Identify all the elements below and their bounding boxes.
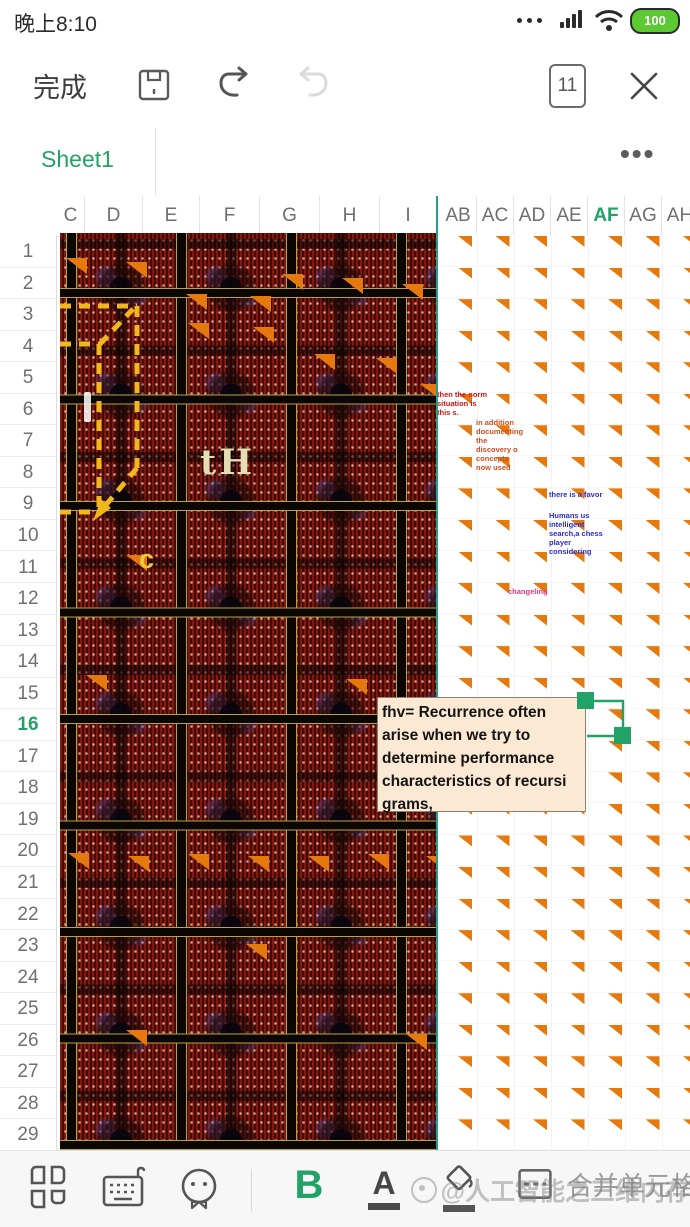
cell-triangle-icon	[458, 1119, 472, 1130]
cell-triangle-icon	[646, 236, 660, 247]
cell-triangle-icon	[496, 867, 510, 878]
font-color-letter: A	[372, 1165, 395, 1201]
gridline	[437, 361, 690, 362]
cell-triangle-icon	[458, 899, 472, 910]
comment-box[interactable]: fhv= Recurrence often arise when we try …	[377, 697, 586, 812]
cell-triangle-icon	[571, 362, 585, 373]
cell-triangle-icon	[608, 993, 622, 1004]
cell-triangle-icon	[683, 646, 690, 657]
gridline	[477, 236, 478, 1150]
cell-triangle-icon	[496, 899, 510, 910]
row-header-16[interactable]: 16	[0, 709, 56, 741]
cell-triangle-icon	[646, 331, 660, 342]
cell-triangle-icon	[646, 362, 660, 373]
battery-icon: 100	[630, 8, 680, 34]
column-header-AH[interactable]: AH	[662, 196, 690, 235]
cell-triangle-icon	[496, 299, 510, 310]
cell-triangle-icon	[683, 236, 690, 247]
cell-triangle-icon	[571, 930, 585, 941]
cell-triangle-icon	[533, 930, 547, 941]
cell-triangle-icon	[533, 993, 547, 1004]
row-header-25[interactable]: 25	[0, 993, 56, 1025]
column-header-AG[interactable]: AG	[625, 196, 662, 235]
column-header-I[interactable]: I	[380, 196, 437, 235]
column-header-AD[interactable]: AD	[514, 196, 551, 235]
row-header-21[interactable]: 21	[0, 867, 56, 899]
gridline	[437, 424, 690, 425]
chip-image-region[interactable]	[60, 233, 437, 1150]
cell-triangle-icon	[533, 362, 547, 373]
cell-triangle-icon	[533, 425, 547, 436]
cell-triangle-icon	[608, 1119, 622, 1130]
cell-triangle-icon	[496, 1056, 510, 1067]
font-color-bar	[368, 1203, 400, 1210]
weibo-eye-icon	[411, 1177, 437, 1203]
row-header-22[interactable]: 22	[0, 899, 56, 931]
cell-triangle-icon	[683, 709, 690, 720]
cell-triangle-icon	[683, 930, 690, 941]
cell-triangle-icon	[571, 299, 585, 310]
cell-triangle-icon	[608, 615, 622, 626]
row-header-28[interactable]: 28	[0, 1088, 56, 1120]
column-header-E[interactable]: E	[143, 196, 200, 235]
cell-triangle-icon	[683, 488, 690, 499]
cell-triangle-icon	[458, 268, 472, 279]
status-bar: 晚上8:10 100	[0, 0, 690, 42]
cell-triangle-icon	[458, 425, 472, 436]
cell-triangle-icon	[496, 268, 510, 279]
gridline	[437, 960, 690, 961]
cell-triangle-icon	[683, 331, 690, 342]
cell-triangle-icon	[571, 615, 585, 626]
save-icon[interactable]	[136, 67, 172, 103]
emoji-assistant-icon[interactable]	[176, 1165, 222, 1213]
cell-triangle-icon	[458, 1056, 472, 1067]
spreadsheet-app-screen: 晚上8:10 100 完成 11	[0, 0, 690, 1227]
gridline	[437, 582, 690, 583]
row-header-17[interactable]: 17	[0, 741, 56, 773]
cell-triangle-icon	[608, 299, 622, 310]
cell-triangle-icon	[496, 615, 510, 626]
column-header-H[interactable]: H	[320, 196, 380, 235]
row-header-10[interactable]: 10	[0, 520, 56, 552]
gridline	[437, 676, 690, 677]
gridline	[437, 455, 690, 456]
font-color-button[interactable]: A	[366, 1167, 402, 1210]
cell-triangle-icon	[646, 1056, 660, 1067]
cell-triangle-icon	[533, 331, 547, 342]
cell-triangle-icon	[496, 552, 510, 563]
cell-triangle-icon	[458, 615, 472, 626]
cell-triangle-icon	[458, 993, 472, 1004]
row-header-24[interactable]: 24	[0, 962, 56, 994]
cell-triangle-icon	[683, 362, 690, 373]
freeze-pane-divider	[436, 196, 438, 1150]
cell-triangle-icon	[683, 615, 690, 626]
cell-triangle-icon	[646, 583, 660, 594]
cell-triangle-icon	[533, 552, 547, 563]
cell-triangle-icon	[608, 1025, 622, 1036]
row-header-1[interactable]: 1	[0, 236, 56, 268]
bold-button[interactable]: B	[292, 1163, 326, 1208]
cell-triangle-icon	[683, 520, 690, 531]
cell-triangle-icon	[608, 583, 622, 594]
cell-triangle-icon	[683, 804, 690, 815]
cell-triangle-icon	[533, 615, 547, 626]
gridline	[437, 1055, 690, 1056]
gridline	[437, 865, 690, 866]
cell-note-text-5: changeling	[508, 587, 570, 596]
cell-triangle-icon	[683, 835, 690, 846]
cell-triangle-icon	[646, 709, 660, 720]
cell-triangle-icon	[608, 1056, 622, 1067]
cell-triangle-icon	[608, 268, 622, 279]
watermark-text: @人工智能之三维内存	[441, 1172, 690, 1208]
column-header-AF[interactable]: AF	[588, 196, 625, 235]
cell-triangle-icon	[571, 457, 585, 468]
cell-triangle-icon	[533, 236, 547, 247]
cell-triangle-icon	[646, 520, 660, 531]
row-header-4[interactable]: 4	[0, 331, 56, 363]
cell-triangle-icon	[458, 678, 472, 689]
cell-triangle-icon	[646, 488, 660, 499]
cell-triangle-icon	[458, 1025, 472, 1036]
cell-triangle-icon	[646, 899, 660, 910]
row-header-27[interactable]: 27	[0, 1056, 56, 1088]
cell-triangle-icon	[533, 962, 547, 973]
cell-triangle-icon	[646, 299, 660, 310]
gridline	[662, 236, 663, 1150]
cell-triangle-icon	[608, 678, 622, 689]
cell-triangle-icon	[496, 930, 510, 941]
keyboard-icon[interactable]	[100, 1165, 148, 1211]
cell-triangle-icon	[608, 709, 622, 720]
cell-triangle-icon	[646, 394, 660, 405]
comment-handle-right[interactable]	[614, 727, 631, 744]
cell-triangle-icon	[458, 835, 472, 846]
column-header-AB[interactable]: AB	[440, 196, 477, 235]
cell-triangle-icon	[533, 394, 547, 405]
cell-triangle-icon	[608, 772, 622, 783]
cell-triangle-icon	[496, 488, 510, 499]
gridline	[437, 329, 690, 330]
row-header-6[interactable]: 6	[0, 394, 56, 426]
cell-triangle-icon	[646, 867, 660, 878]
cell-triangle-icon	[608, 646, 622, 657]
column-header-AC[interactable]: AC	[477, 196, 514, 235]
gridline	[437, 1086, 690, 1087]
row-header-20[interactable]: 20	[0, 835, 56, 867]
cell-note-text-1: then the norm situation is this s.	[437, 390, 487, 417]
cell-triangle-icon	[533, 1119, 547, 1130]
row-header-18[interactable]: 18	[0, 772, 56, 804]
cell-triangle-icon	[458, 488, 472, 499]
cell-triangle-icon	[646, 552, 660, 563]
row-header-2[interactable]: 2	[0, 268, 56, 300]
cell-triangle-icon	[496, 678, 510, 689]
cell-triangle-icon	[496, 236, 510, 247]
gridline	[437, 298, 690, 299]
row-header-3[interactable]: 3	[0, 299, 56, 331]
gridline	[437, 266, 690, 267]
cell-triangle-icon	[608, 867, 622, 878]
gridline	[551, 236, 552, 1150]
gridline	[437, 1023, 690, 1024]
row-header-7[interactable]: 7	[0, 425, 56, 457]
row-header-29[interactable]: 29	[0, 1119, 56, 1151]
row-header-14[interactable]: 14	[0, 646, 56, 678]
cell-triangle-icon	[683, 962, 690, 973]
cell-triangle-icon	[646, 1088, 660, 1099]
cell-triangle-icon	[608, 488, 622, 499]
cell-triangle-icon	[533, 1088, 547, 1099]
cell-triangle-icon	[683, 457, 690, 468]
cell-triangle-icon	[646, 268, 660, 279]
tab-divider	[155, 128, 156, 196]
cell-triangle-icon	[571, 331, 585, 342]
cell-note-text-4: Humans us intelligent search,a chess pla…	[549, 511, 603, 556]
cell-triangle-icon	[683, 1056, 690, 1067]
cell-triangle-icon	[458, 962, 472, 973]
cell-note-text-3: there is a favor	[549, 490, 603, 499]
comment-handle-top[interactable]	[577, 692, 594, 709]
cell-triangle-icon	[646, 615, 660, 626]
cell-triangle-icon	[496, 331, 510, 342]
cell-triangle-icon	[458, 362, 472, 373]
cell-triangle-icon	[608, 804, 622, 815]
cell-triangle-icon	[496, 962, 510, 973]
cell-triangle-icon	[608, 899, 622, 910]
cell-triangle-icon	[533, 520, 547, 531]
row-header-12[interactable]: 12	[0, 583, 56, 615]
cell-triangle-icon	[571, 1088, 585, 1099]
row-header-9[interactable]: 9	[0, 488, 56, 520]
cell-triangle-icon	[683, 993, 690, 1004]
cursor-bar	[84, 392, 91, 422]
cell-triangle-icon	[571, 268, 585, 279]
row-header-15[interactable]: 15	[0, 678, 56, 710]
cell-triangle-icon	[458, 299, 472, 310]
column-header-D[interactable]: D	[85, 196, 143, 235]
cell-triangle-icon	[571, 646, 585, 657]
cell-triangle-icon	[458, 930, 472, 941]
cell-triangle-icon	[646, 962, 660, 973]
cell-triangle-icon	[646, 804, 660, 815]
cell-note-text-2: in addition documenting the discovery o …	[476, 418, 524, 472]
cell-triangle-icon	[571, 1025, 585, 1036]
cell-triangle-icon	[683, 772, 690, 783]
cellular-signal-icon	[560, 10, 582, 28]
cell-triangle-icon	[646, 741, 660, 752]
column-header-AE[interactable]: AE	[551, 196, 588, 235]
cell-triangle-icon	[646, 425, 660, 436]
done-button[interactable]: 完成	[33, 66, 87, 105]
cell-triangle-icon	[533, 678, 547, 689]
cell-triangle-icon	[496, 1025, 510, 1036]
cell-triangle-icon	[646, 646, 660, 657]
row-header-26[interactable]: 26	[0, 1025, 56, 1057]
gridline	[437, 1118, 690, 1119]
cell-triangle-icon	[571, 867, 585, 878]
gridline	[437, 897, 690, 898]
cell-triangle-icon	[458, 552, 472, 563]
cell-triangle-icon	[683, 867, 690, 878]
gridline	[437, 929, 690, 930]
gridline	[437, 992, 690, 993]
cell-triangle-icon	[571, 678, 585, 689]
cell-triangle-icon	[683, 1119, 690, 1130]
cell-triangle-icon	[683, 899, 690, 910]
cell-triangle-icon	[683, 1025, 690, 1036]
cell-triangle-icon	[533, 299, 547, 310]
cell-triangle-icon	[683, 425, 690, 436]
row-header-13[interactable]: 13	[0, 615, 56, 647]
cell-triangle-icon	[533, 488, 547, 499]
cell-triangle-icon	[683, 552, 690, 563]
cell-triangle-icon	[571, 835, 585, 846]
cell-triangle-icon	[608, 362, 622, 373]
cell-triangle-icon	[458, 583, 472, 594]
clock-text: 晚上8:10	[14, 8, 97, 38]
gridline	[625, 236, 626, 1150]
cell-triangle-icon	[458, 1088, 472, 1099]
gridline	[437, 645, 690, 646]
cell-triangle-icon	[496, 394, 510, 405]
cell-text-th: tH	[200, 442, 255, 483]
cell-triangle-icon	[646, 1119, 660, 1130]
cell-triangle-icon	[571, 425, 585, 436]
cell-triangle-icon	[571, 236, 585, 247]
cell-triangle-icon	[608, 457, 622, 468]
cell-triangle-icon	[608, 236, 622, 247]
cell-triangle-icon	[608, 552, 622, 563]
cell-triangle-icon	[533, 1056, 547, 1067]
cell-triangle-icon	[533, 899, 547, 910]
cell-triangle-icon	[683, 394, 690, 405]
notification-dots-icon	[517, 18, 542, 23]
cell-triangle-icon	[608, 835, 622, 846]
cell-triangle-icon	[496, 835, 510, 846]
wifi-icon	[594, 8, 624, 32]
cell-triangle-icon	[646, 1025, 660, 1036]
tab-sheet1[interactable]: Sheet1	[0, 146, 155, 173]
row-headers: 1234567891011121314151617181920212223242…	[0, 236, 57, 1150]
gridline	[437, 834, 690, 835]
cell-triangle-icon	[571, 394, 585, 405]
cell-triangle-icon	[646, 930, 660, 941]
cell-triangle-icon	[458, 457, 472, 468]
cell-triangle-icon	[533, 457, 547, 468]
cell-triangle-icon	[608, 331, 622, 342]
cell-triangle-icon	[646, 835, 660, 846]
watermark: @人工智能之三维内存	[411, 1172, 690, 1208]
right-cell-region[interactable]: then the norm situation is this s.in add…	[437, 236, 690, 1150]
cell-triangle-icon	[608, 394, 622, 405]
cell-triangle-icon	[608, 930, 622, 941]
toolbar-divider	[251, 1169, 252, 1211]
cell-triangle-icon	[458, 867, 472, 878]
cell-triangle-icon	[533, 268, 547, 279]
cell-text-c: c	[139, 544, 154, 575]
row-header-19[interactable]: 19	[0, 804, 56, 836]
cell-triangle-icon	[571, 1119, 585, 1130]
cell-triangle-icon	[646, 993, 660, 1004]
cell-triangle-icon	[496, 646, 510, 657]
cell-triangle-icon	[608, 425, 622, 436]
cell-triangle-icon	[608, 1088, 622, 1099]
cell-triangle-icon	[571, 993, 585, 1004]
row-header-23[interactable]: 23	[0, 930, 56, 962]
sheet-count-button[interactable]: 11	[549, 64, 586, 108]
cell-triangle-icon	[571, 962, 585, 973]
cell-triangle-icon	[683, 583, 690, 594]
gridline	[437, 613, 690, 614]
cell-triangle-icon	[571, 1056, 585, 1067]
cell-triangle-icon	[496, 1088, 510, 1099]
cell-triangle-icon	[608, 962, 622, 973]
cell-triangle-icon	[608, 520, 622, 531]
row-header-11[interactable]: 11	[0, 552, 56, 584]
cell-triangle-icon	[646, 772, 660, 783]
cell-triangle-icon	[533, 835, 547, 846]
column-headers: CDEFGHIABACADAEAFAGAH	[0, 196, 690, 237]
edit-toolbar: 完成 11	[0, 42, 690, 129]
cell-triangle-icon	[533, 867, 547, 878]
cell-triangle-icon	[496, 993, 510, 1004]
cell-triangle-icon	[496, 362, 510, 373]
cell-triangle-icon	[458, 520, 472, 531]
redo-icon[interactable]	[292, 66, 332, 104]
cell-triangle-icon	[683, 299, 690, 310]
undo-icon[interactable]	[215, 66, 255, 104]
cell-triangle-icon	[646, 457, 660, 468]
close-icon[interactable]	[626, 68, 662, 104]
column-header-C[interactable]: C	[57, 196, 85, 235]
cell-triangle-icon	[496, 1119, 510, 1130]
cell-triangle-icon	[571, 899, 585, 910]
cell-triangle-icon	[683, 741, 690, 752]
cell-triangle-icon	[571, 583, 585, 594]
column-header-F[interactable]: F	[200, 196, 260, 235]
cell-triangle-icon	[458, 646, 472, 657]
cell-triangle-icon	[533, 1025, 547, 1036]
cell-triangle-icon	[458, 236, 472, 247]
gridline	[514, 236, 515, 1150]
cell-triangle-icon	[458, 331, 472, 342]
tools-grid-icon[interactable]	[28, 1165, 72, 1211]
gridline	[437, 487, 690, 488]
cell-triangle-icon	[646, 678, 660, 689]
cell-triangle-icon	[683, 1088, 690, 1099]
row-header-5[interactable]: 5	[0, 362, 56, 394]
cell-triangle-icon	[683, 268, 690, 279]
row-header-8[interactable]: 8	[0, 457, 56, 489]
cell-triangle-icon	[533, 646, 547, 657]
column-header-G[interactable]: G	[260, 196, 320, 235]
cell-triangle-icon	[496, 520, 510, 531]
cell-triangle-icon	[683, 678, 690, 689]
more-tabs-button[interactable]: •••	[620, 138, 655, 170]
